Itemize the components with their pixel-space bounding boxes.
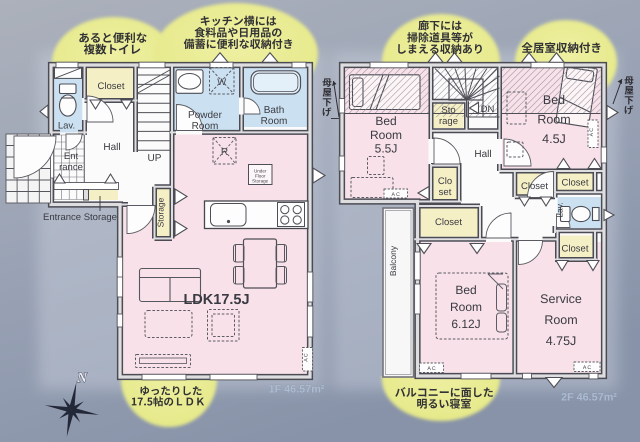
svg-text:Room: Room (192, 121, 219, 132)
svg-text:Hall: Hall (103, 142, 120, 153)
svg-text:rance: rance (59, 162, 83, 173)
svg-text:Powder: Powder (188, 110, 223, 121)
svg-text:Bed: Bed (375, 114, 396, 128)
svg-text:rage: rage (439, 116, 458, 127)
svg-text:Storage: Storage (156, 197, 166, 227)
svg-text:Bed: Bed (455, 283, 476, 297)
svg-text:UP: UP (148, 153, 162, 164)
svg-text:Sto: Sto (441, 105, 455, 116)
svg-text:A C: A C (583, 365, 592, 371)
svg-text:set: set (439, 187, 452, 198)
svg-text:Storage: Storage (252, 179, 269, 184)
svg-text:DN: DN (481, 104, 495, 115)
svg-text:A C: A C (392, 192, 401, 198)
svg-text:N: N (76, 371, 88, 386)
svg-text:Ent: Ent (64, 151, 79, 162)
svg-text:6.12J: 6.12J (451, 317, 480, 331)
svg-text:W: W (217, 77, 226, 88)
svg-text:1F 46.57m²: 1F 46.57m² (269, 384, 325, 396)
svg-text:R: R (221, 147, 228, 158)
svg-text:A C: A C (304, 353, 310, 362)
svg-text:Entrance Storage: Entrance Storage (43, 212, 117, 223)
svg-text:Room: Room (544, 313, 577, 327)
svg-text:Closet: Closet (435, 217, 462, 228)
svg-text:Service: Service (540, 292, 582, 306)
svg-text:Lav.: Lav. (555, 202, 565, 217)
svg-text:5.5J: 5.5J (375, 142, 398, 156)
svg-text:Room: Room (450, 300, 482, 314)
svg-text:Clo: Clo (438, 176, 452, 187)
svg-text:Bath: Bath (264, 105, 285, 116)
svg-text:Lav.: Lav. (58, 121, 75, 132)
svg-text:A C: A C (589, 128, 595, 137)
svg-text:Closet: Closet (562, 244, 589, 255)
svg-text:Room: Room (261, 116, 288, 127)
svg-text:Room: Room (370, 128, 402, 142)
svg-text:Closet: Closet (562, 178, 589, 189)
svg-text:LDK17.5J: LDK17.5J (183, 292, 249, 308)
svg-text:A C: A C (427, 366, 436, 372)
svg-text:Bed: Bed (543, 93, 565, 107)
svg-text:Closet: Closet (98, 81, 125, 92)
svg-text:2F 46.57m²: 2F 46.57m² (561, 392, 617, 404)
svg-text:4.5J: 4.5J (542, 132, 566, 146)
svg-text:Closet: Closet (521, 181, 548, 192)
svg-text:Hall: Hall (474, 149, 491, 160)
svg-text:Balcony: Balcony (388, 245, 398, 276)
svg-text:4.75J: 4.75J (546, 334, 577, 348)
svg-text:Room: Room (537, 113, 570, 127)
